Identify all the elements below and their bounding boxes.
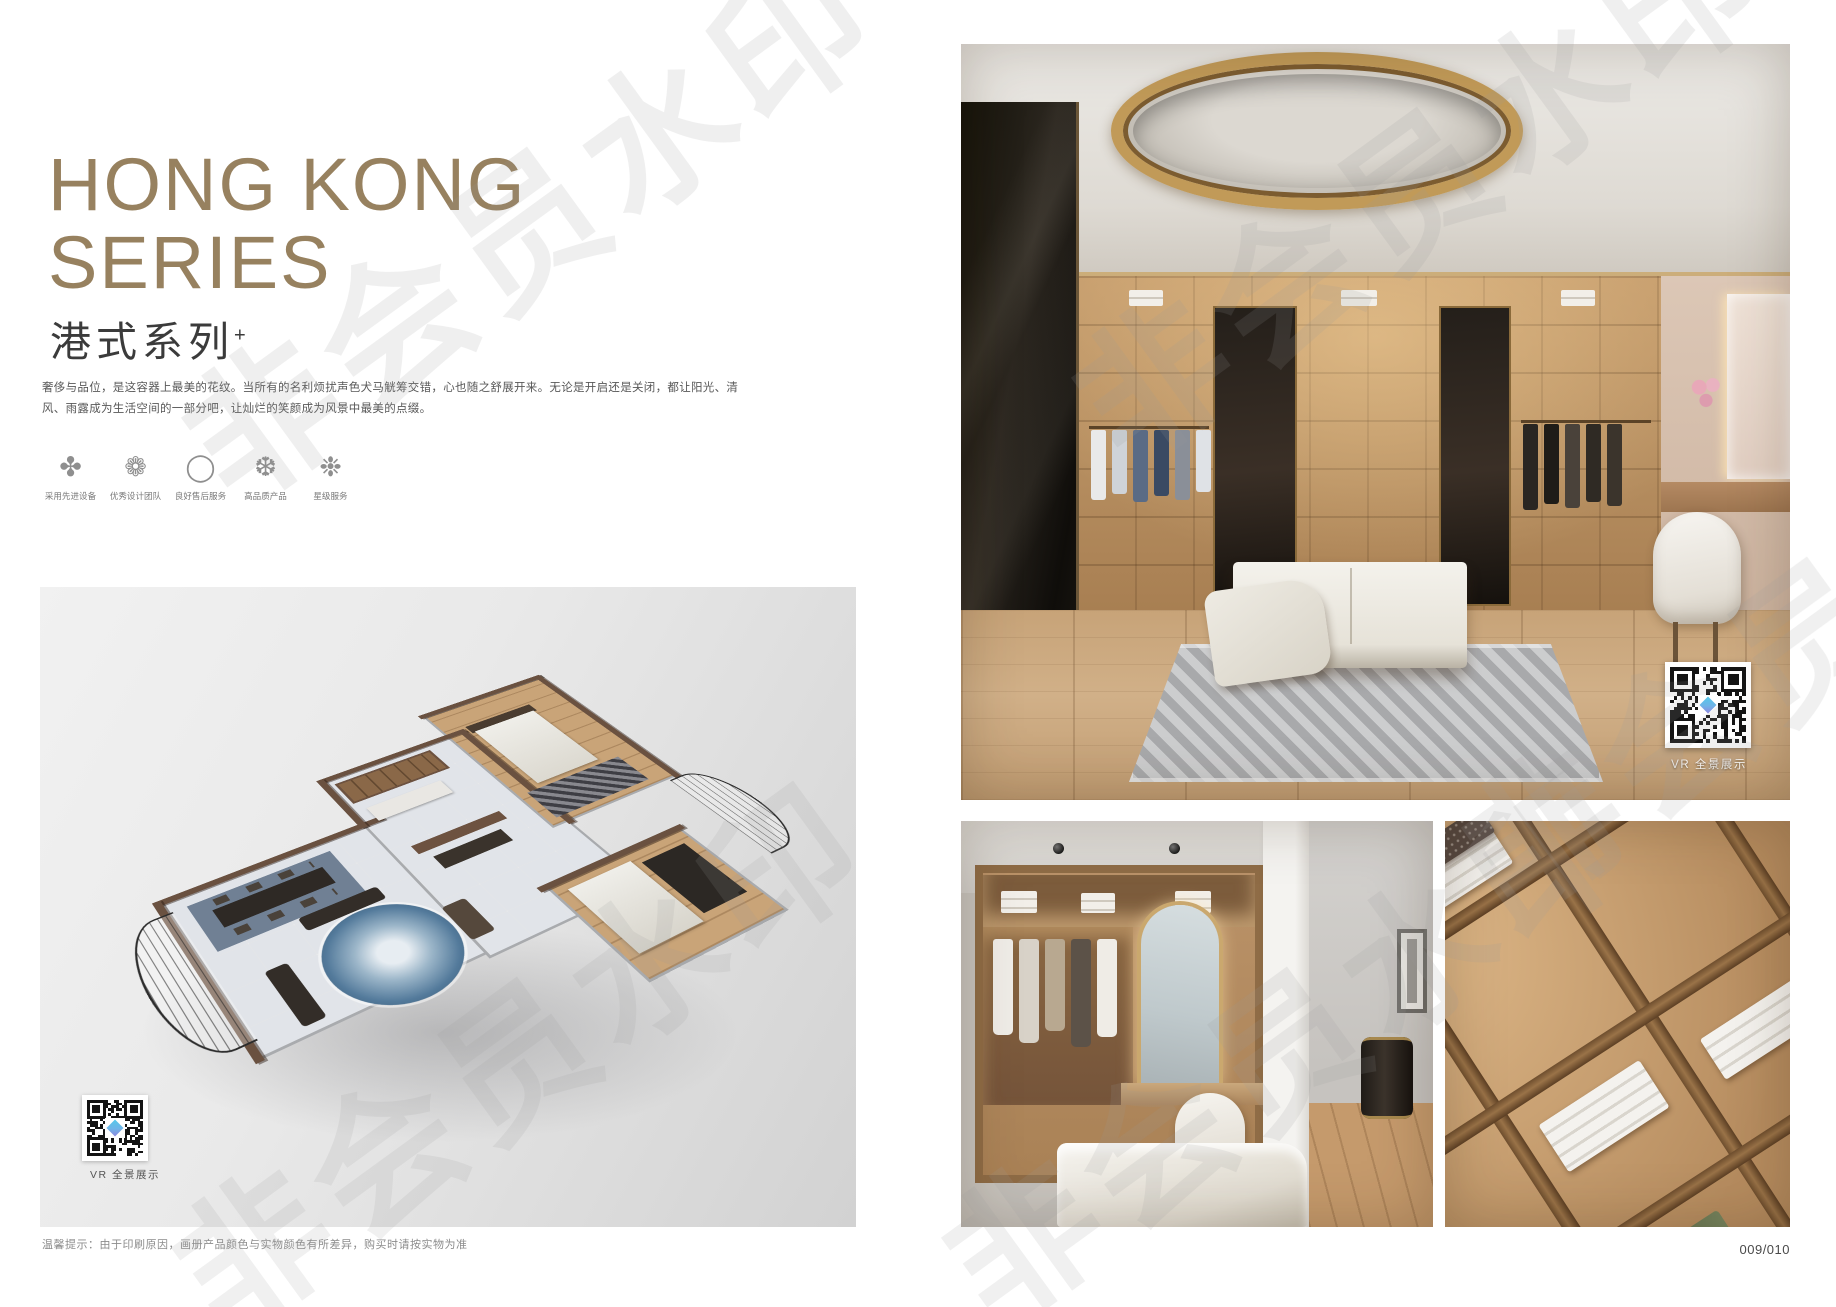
vanity-mirror: [1727, 294, 1790, 479]
white-chair: [1653, 512, 1741, 624]
picture-frame: [1397, 929, 1427, 1013]
vr-cube-logo-icon: [1698, 695, 1718, 715]
snowflake-icon: ❆: [233, 450, 298, 484]
folded-clothes: [1341, 290, 1377, 306]
vanity-counter: [1661, 482, 1790, 512]
draped-blanket: [1203, 576, 1333, 687]
series-title-cn: 港式系列+: [50, 308, 251, 368]
folded-clothes: [1700, 980, 1790, 1080]
catalog-spread: HONG KONG SERIES 港式系列+ 奢侈与品位，是这容器上最美的花纹。…: [0, 0, 1836, 1307]
title-line2: SERIES: [48, 224, 526, 302]
downlight-icon: [1169, 843, 1180, 854]
feature-label: 优秀设计团队: [105, 489, 167, 501]
feature-after-sales: ◯ 良好售后服务: [168, 450, 233, 502]
folded-clothes: [1081, 893, 1115, 913]
feature-label: 采用先进设备: [40, 489, 102, 501]
description-line2: 风、雨露成为生活空间的一部分吧，让灿烂的笑颜成为风景中最美的点缀。: [42, 399, 672, 420]
ornament-icon: ✤: [38, 450, 103, 484]
wood-shelf-grid: [1445, 821, 1790, 1227]
plus-mark: +: [234, 324, 251, 346]
feature-quality: ❆ 高品质产品: [233, 450, 298, 502]
floorplan-render: [70, 597, 830, 1137]
floorplan-qr-code: [82, 1095, 148, 1161]
dark-cabinet: [1439, 306, 1511, 606]
rosette-icon: ❁: [103, 450, 168, 484]
ring-icon: ◯: [168, 450, 233, 484]
title-line1: HONG KONG: [48, 146, 526, 224]
feature-label: 良好售后服务: [170, 489, 232, 501]
vanity-mirror: [1141, 905, 1219, 1085]
drum-cabinet: [1361, 1037, 1413, 1119]
folded-clothes: [1561, 290, 1595, 306]
page-number: 009/010: [1660, 1242, 1790, 1257]
hanging-coats: [1523, 424, 1622, 510]
dark-cabinet: [1213, 306, 1297, 606]
ceiling-ring-light: [1111, 52, 1523, 210]
series-description: 奢侈与品位，是这容器上最美的花纹。当所有的名利烦扰声色犬马觥筹交错，心也随之舒展…: [42, 378, 672, 420]
bed-corner: [1057, 1143, 1307, 1227]
hanging-clothes: [1091, 430, 1211, 502]
floorplan-vr-label: VR 全景展示: [90, 1167, 160, 1182]
folded-clothes: [1129, 290, 1163, 306]
feature-list: ✤ 采用先进设备 ❁ 优秀设计团队 ◯ 良好售后服务 ❆ 高品质产品 ❉ 星级服…: [38, 450, 363, 502]
folded-clothes: [1001, 891, 1037, 913]
footer-disclaimer: 温馨提示：由于印刷原因，画册产品颜色与实物颜色有所差异，购买时请按实物为准: [42, 1236, 468, 1252]
hallway-wood-floor: [1309, 1103, 1433, 1227]
feature-label: 星级服务: [300, 489, 362, 501]
feature-equipment: ✤ 采用先进设备: [38, 450, 103, 502]
feature-star-service: ❉ 星级服务: [298, 450, 363, 502]
walk-in-closet-photo: VR 全景展示: [961, 44, 1790, 800]
feature-design-team: ❁ 优秀设计团队: [103, 450, 168, 502]
vr-cube-logo-icon: [105, 1118, 125, 1138]
star-icon: ❉: [298, 450, 363, 484]
feature-label: 高品质产品: [235, 489, 297, 501]
shelf-closeup-photo: [1445, 821, 1790, 1227]
description-line1: 奢侈与品位，是这容器上最美的花纹。当所有的名利烦扰声色犬马觥筹交错，心也随之舒展…: [42, 378, 672, 399]
dressing-area-photo: [961, 821, 1433, 1227]
flowers: [1689, 374, 1723, 418]
photo-vr-label: VR 全景展示: [1661, 756, 1757, 772]
series-title-en: HONG KONG SERIES: [48, 146, 526, 302]
downlight-icon: [1053, 843, 1064, 854]
photo-qr-code: [1665, 662, 1751, 748]
hanging-section: [983, 927, 1133, 1105]
floorplan-panel: VR 全景展示: [40, 587, 856, 1227]
